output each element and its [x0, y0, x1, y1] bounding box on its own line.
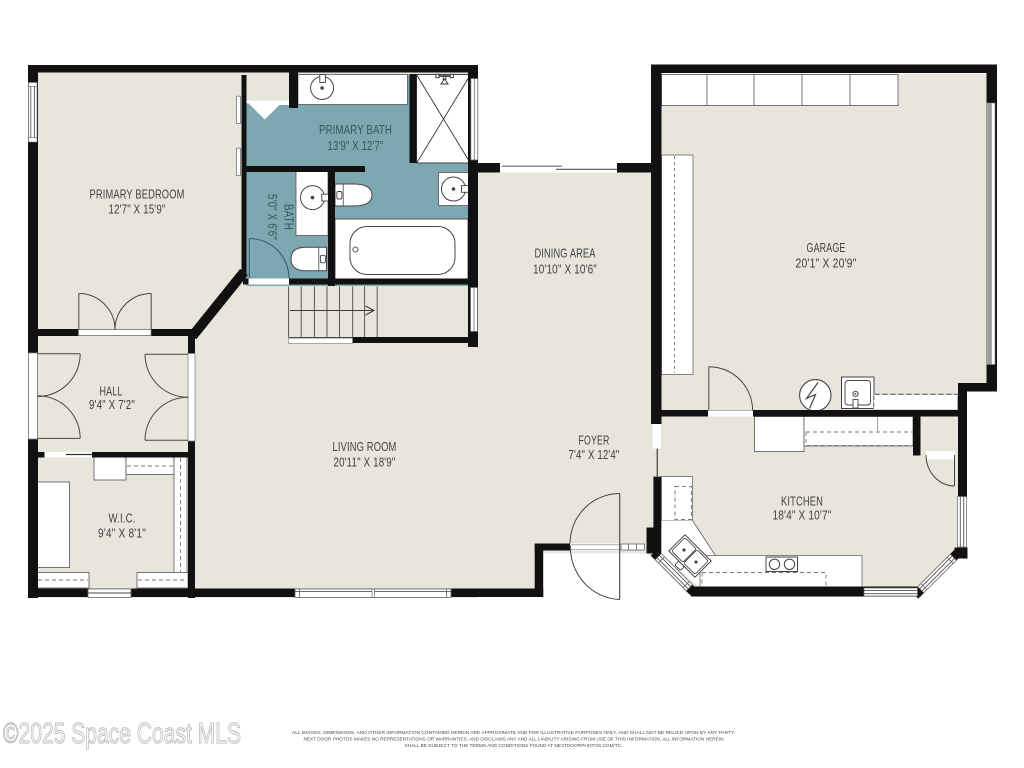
- svg-text:18'4" X 10'7": 18'4" X 10'7": [773, 509, 832, 523]
- svg-text:HALL: HALL: [100, 384, 123, 399]
- svg-text:PRIMARY BEDROOM: PRIMARY BEDROOM: [90, 187, 185, 202]
- svg-text:FOYER: FOYER: [579, 433, 610, 448]
- svg-text:12'7" X 15'9": 12'7" X 15'9": [109, 203, 166, 217]
- svg-text:KITCHEN: KITCHEN: [781, 494, 823, 509]
- svg-text:W.I.C.: W.I.C.: [109, 511, 136, 526]
- svg-text:©2025 Space Coast MLS: ©2025 Space Coast MLS: [3, 718, 241, 750]
- svg-text:SHALL BE SUBJECT TO THE TERMS: SHALL BE SUBJECT TO THE TERMS AND CONDIT…: [405, 743, 623, 749]
- svg-text:LIVING ROOM: LIVING ROOM: [333, 439, 397, 454]
- svg-text:DINING AREA: DINING AREA: [535, 246, 596, 261]
- svg-text:7'4" X 12'4": 7'4" X 12'4": [569, 448, 620, 462]
- svg-text:9'4" X 8'1": 9'4" X 8'1": [98, 527, 146, 541]
- svg-text:20'11" X 18'9": 20'11" X 18'9": [334, 456, 396, 470]
- svg-text:20'1" X 20'9": 20'1" X 20'9": [796, 257, 857, 271]
- svg-text:NEXT DOOR PHOTOS MAKES NO REPR: NEXT DOOR PHOTOS MAKES NO REPRESENTATION…: [304, 737, 725, 743]
- svg-text:10'10" X 10'6": 10'10" X 10'6": [533, 263, 597, 277]
- svg-text:BATH: BATH: [282, 204, 297, 230]
- svg-text:PRIMARY BATH: PRIMARY BATH: [319, 122, 392, 137]
- svg-text:GARAGE: GARAGE: [807, 240, 846, 255]
- svg-text:9'4" X 7'2": 9'4" X 7'2": [89, 398, 135, 412]
- svg-text:5'0" X 6'6": 5'0" X 6'6": [265, 194, 279, 240]
- svg-text:ALL IMAGES, DIMENSIONS, AND OT: ALL IMAGES, DIMENSIONS, AND OTHER INFORM…: [292, 730, 735, 736]
- svg-text:13'9" X 12'7": 13'9" X 12'7": [328, 139, 384, 153]
